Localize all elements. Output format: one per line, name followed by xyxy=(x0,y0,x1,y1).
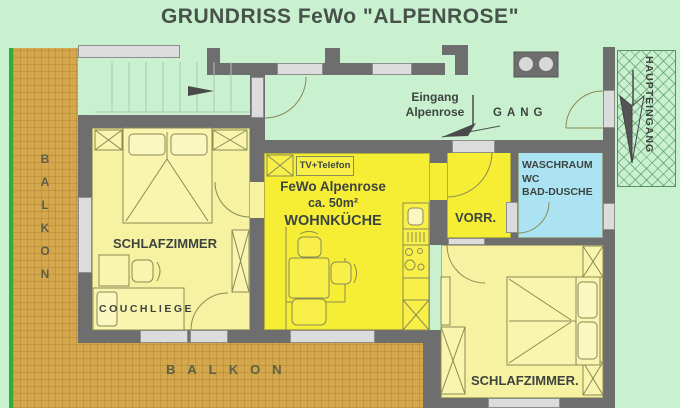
room-bedroom-left xyxy=(92,128,250,330)
wall-bottom xyxy=(78,330,430,343)
balcony-left-label: BALKON xyxy=(38,152,58,337)
wall xyxy=(442,45,468,55)
wall xyxy=(78,115,252,128)
corridor-appliance xyxy=(514,52,558,77)
living-kitchen-labels: FeWo Alpenrose ca. 50m² WOHNKÜCHE xyxy=(268,179,398,229)
stair-door xyxy=(251,77,264,118)
stair-arrow-icon xyxy=(188,86,214,96)
apartment-area: ca. 50m² xyxy=(268,196,398,210)
wall xyxy=(455,55,468,75)
wall-apartment-top xyxy=(250,140,603,153)
main-entrance-door xyxy=(603,90,615,128)
window xyxy=(603,203,615,230)
window xyxy=(277,63,323,75)
washroom-line2: WC xyxy=(522,173,593,187)
bedroom-left-label: SCHLAFZIMMER xyxy=(113,236,217,251)
corridor-label: GANG xyxy=(493,107,548,119)
wall xyxy=(220,63,277,75)
room-vorraum xyxy=(447,152,511,238)
wall-mid xyxy=(250,128,264,343)
window xyxy=(372,63,412,75)
entrance-line2: Alpenrose xyxy=(400,105,470,120)
wall xyxy=(325,48,340,63)
wall xyxy=(207,48,220,75)
wall xyxy=(323,63,372,75)
entrance-labels: Eingang Alpenrose xyxy=(400,90,470,120)
wall xyxy=(423,330,441,408)
couch-label: COUCHLIEGE xyxy=(99,303,194,315)
living-kitchen-label: WOHNKÜCHE xyxy=(268,213,398,229)
window xyxy=(140,330,188,343)
washroom-line3: BAD-DUSCHE xyxy=(522,186,593,200)
floorplan: GRUNDRISS FeWo "ALPENROSE" BALKON BALKON… xyxy=(0,0,680,408)
window xyxy=(78,197,92,273)
apartment-entrance-door xyxy=(452,140,495,153)
window xyxy=(488,398,560,408)
wall xyxy=(412,63,445,75)
apartment-name: FeWo Alpenrose xyxy=(268,179,398,194)
bedroom-right-door xyxy=(448,238,485,245)
page-title: GRUNDRISS FeWo "ALPENROSE" xyxy=(0,5,680,29)
tv-telefon-box: TV+Telefon xyxy=(296,156,354,176)
balcony-door xyxy=(190,330,228,343)
washroom-labels: WASCHRAUM WC BAD-DUSCHE xyxy=(522,159,593,200)
main-entrance-label: HAUPTEINGANG xyxy=(637,56,655,184)
washroom-line1: WASCHRAUM xyxy=(522,159,593,173)
washroom-door xyxy=(506,202,518,233)
bedroom-right-label: SCHLAFZIMMER. xyxy=(471,373,579,388)
vorraum-label: VORR. xyxy=(455,210,496,225)
door-opening-kitchen-vorraum xyxy=(430,163,447,200)
window xyxy=(78,45,180,58)
door-opening-bedroom-kitchen xyxy=(250,182,264,218)
terrace-window xyxy=(290,330,375,343)
entrance-line1: Eingang xyxy=(400,90,470,105)
balcony-bottom-label: BALKON xyxy=(166,362,294,377)
